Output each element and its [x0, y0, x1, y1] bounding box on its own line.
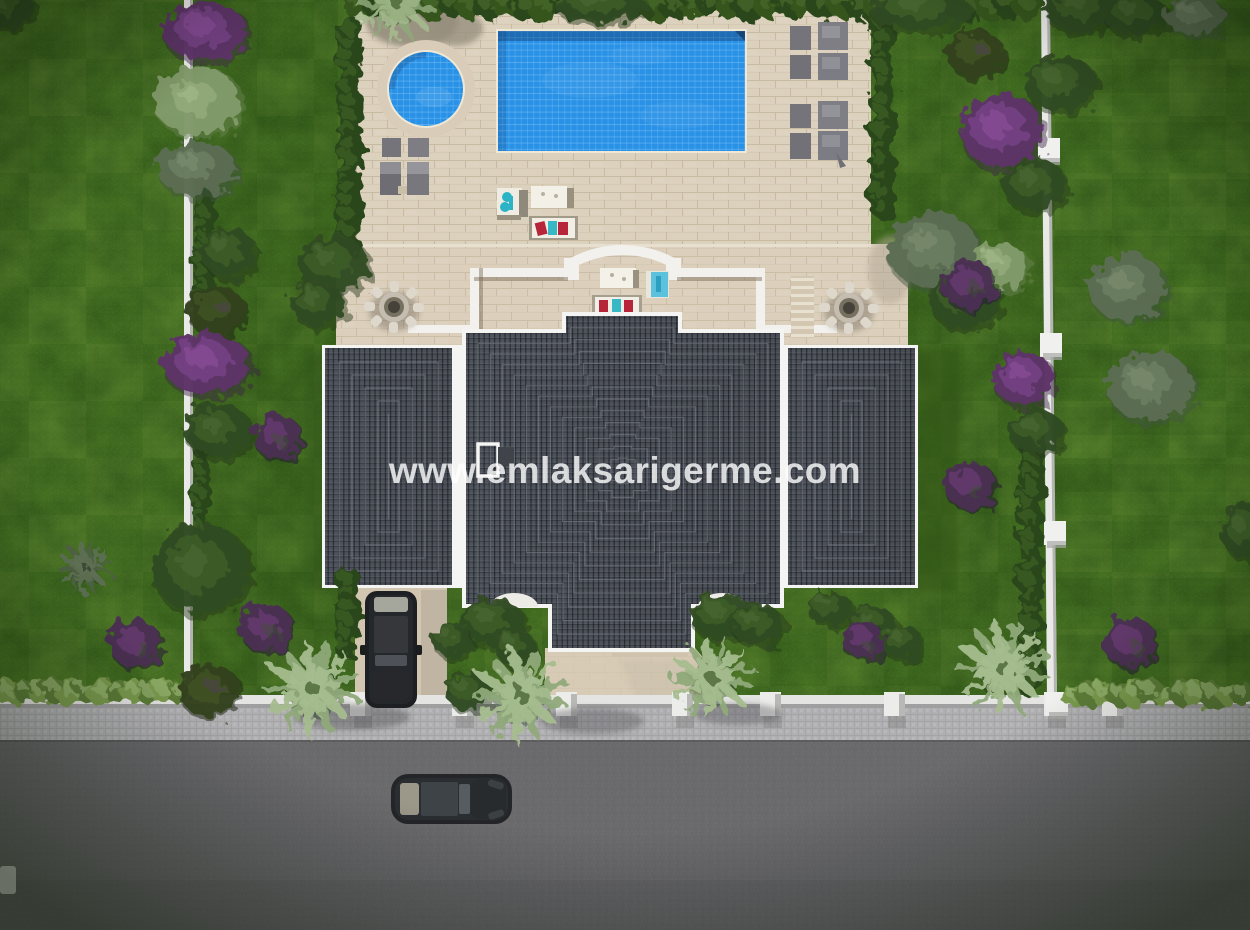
svg-text:www.emlaksarigerme.com: www.emlaksarigerme.com — [388, 450, 861, 491]
